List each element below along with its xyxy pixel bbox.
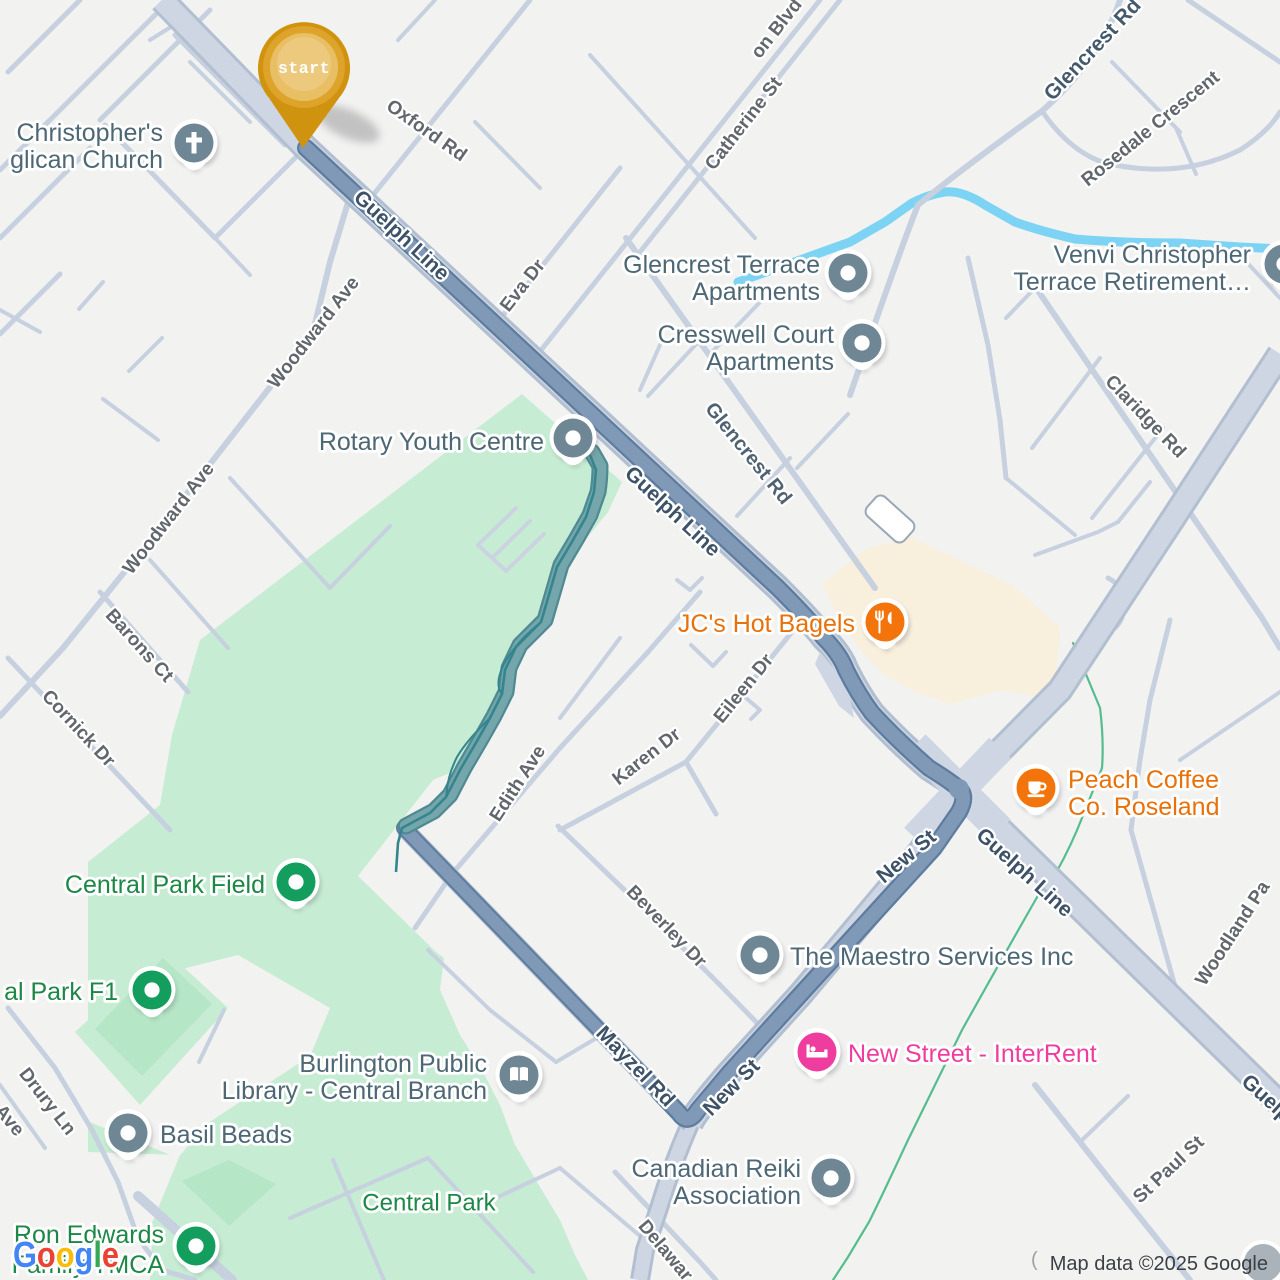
svg-text:Central Park: Central Park xyxy=(362,1189,496,1216)
svg-text:Map data ©2025 Google: Map data ©2025 Google xyxy=(1050,1253,1268,1275)
svg-text:start: start xyxy=(278,59,330,78)
svg-text:Christopher's: Christopher's xyxy=(17,119,164,147)
svg-text:Google: Google xyxy=(13,1234,119,1275)
svg-text:The Maestro Services Inc: The Maestro Services Inc xyxy=(790,943,1073,971)
svg-text:Apartments: Apartments xyxy=(706,348,834,376)
svg-text:Glencrest Terrace: Glencrest Terrace xyxy=(623,251,820,279)
svg-text:Cresswell Court: Cresswell Court xyxy=(658,321,834,349)
svg-text:Library - Central Branch: Library - Central Branch xyxy=(222,1077,487,1105)
svg-text:Burlington Public: Burlington Public xyxy=(299,1050,487,1078)
svg-text:Basil Beads: Basil Beads xyxy=(160,1121,292,1149)
svg-text:Canadian Reiki: Canadian Reiki xyxy=(631,1155,801,1183)
svg-text:Rotary Youth Centre: Rotary Youth Centre xyxy=(319,428,544,456)
svg-text:Terrace Retirement…: Terrace Retirement… xyxy=(1013,268,1251,296)
svg-text:Central Park Field: Central Park Field xyxy=(65,871,265,899)
svg-text:(: ( xyxy=(1031,1249,1038,1271)
svg-text:Association: Association xyxy=(673,1182,801,1210)
svg-text:glican Church: glican Church xyxy=(10,146,163,174)
svg-text:al Park F1: al Park F1 xyxy=(4,978,118,1006)
svg-text:Apartments: Apartments xyxy=(692,278,820,306)
svg-text:Venvi Christopher: Venvi Christopher xyxy=(1054,241,1251,269)
svg-text:New Street - InterRent: New Street - InterRent xyxy=(848,1040,1097,1068)
svg-text:JC's Hot Bagels: JC's Hot Bagels xyxy=(678,610,855,638)
svg-text:Peach Coffee: Peach Coffee xyxy=(1068,766,1219,794)
svg-text:Co. Roseland: Co. Roseland xyxy=(1068,793,1219,821)
